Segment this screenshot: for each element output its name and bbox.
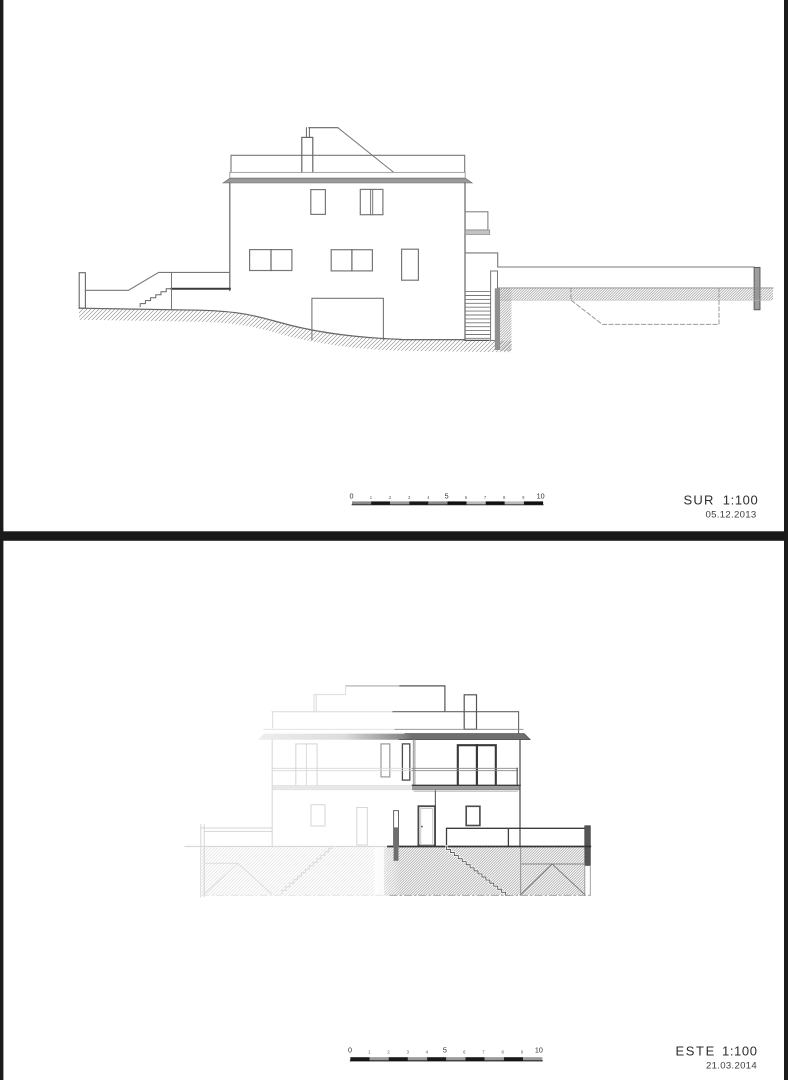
svg-text:05.12.2013: 05.12.2013: [706, 509, 757, 520]
svg-text:9: 9: [521, 1049, 524, 1054]
svg-text:6: 6: [463, 1049, 466, 1054]
svg-text:8: 8: [502, 1049, 505, 1054]
svg-text:ESTE: ESTE: [676, 1044, 716, 1059]
svg-text:3: 3: [408, 495, 411, 500]
svg-text:1:100: 1:100: [722, 1044, 758, 1059]
svg-text:4: 4: [427, 495, 430, 500]
svg-text:9: 9: [522, 495, 525, 500]
svg-text:7: 7: [482, 1049, 485, 1054]
svg-text:10: 10: [537, 491, 545, 500]
svg-text:5: 5: [443, 1046, 447, 1055]
svg-text:0: 0: [350, 491, 354, 500]
svg-text:2: 2: [387, 1049, 390, 1054]
svg-text:2: 2: [389, 495, 392, 500]
svg-text:0: 0: [348, 1046, 352, 1055]
svg-text:4: 4: [426, 1049, 429, 1054]
svg-text:1:100: 1:100: [723, 493, 759, 508]
svg-text:6: 6: [465, 495, 468, 500]
svg-text:5: 5: [445, 491, 449, 500]
svg-text:8: 8: [503, 495, 506, 500]
svg-text:1: 1: [368, 1049, 371, 1054]
svg-text:7: 7: [484, 495, 487, 500]
svg-text:21.03.2014: 21.03.2014: [706, 1061, 757, 1072]
svg-text:3: 3: [407, 1049, 410, 1054]
svg-text:SUR: SUR: [684, 493, 715, 508]
svg-text:10: 10: [535, 1046, 543, 1055]
svg-text:1: 1: [370, 495, 373, 500]
